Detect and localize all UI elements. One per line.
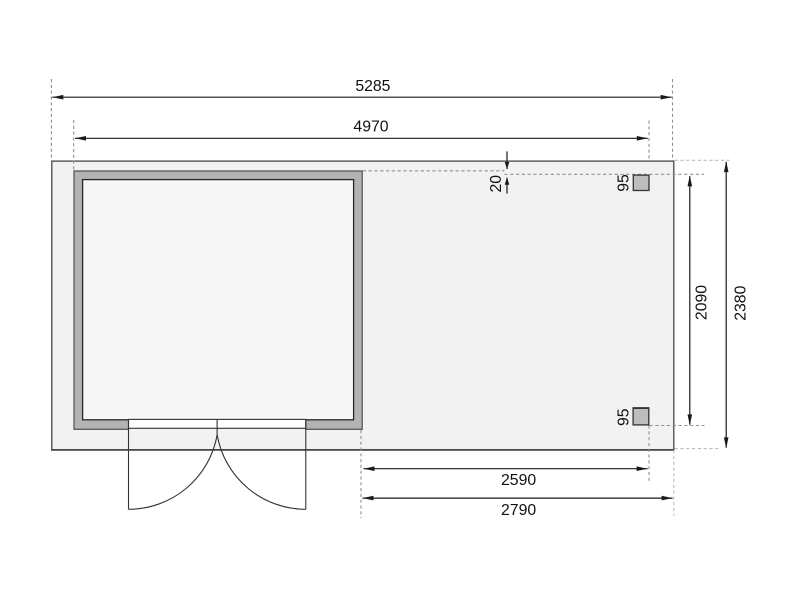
- svg-text:95: 95: [616, 174, 633, 192]
- svg-text:95: 95: [616, 408, 633, 426]
- svg-text:5285: 5285: [355, 78, 390, 95]
- svg-text:2590: 2590: [501, 472, 536, 489]
- svg-text:4970: 4970: [353, 119, 388, 136]
- svg-text:2090: 2090: [694, 285, 711, 320]
- svg-text:2380: 2380: [733, 285, 750, 320]
- svg-text:2790: 2790: [501, 502, 536, 519]
- svg-text:20: 20: [488, 175, 505, 193]
